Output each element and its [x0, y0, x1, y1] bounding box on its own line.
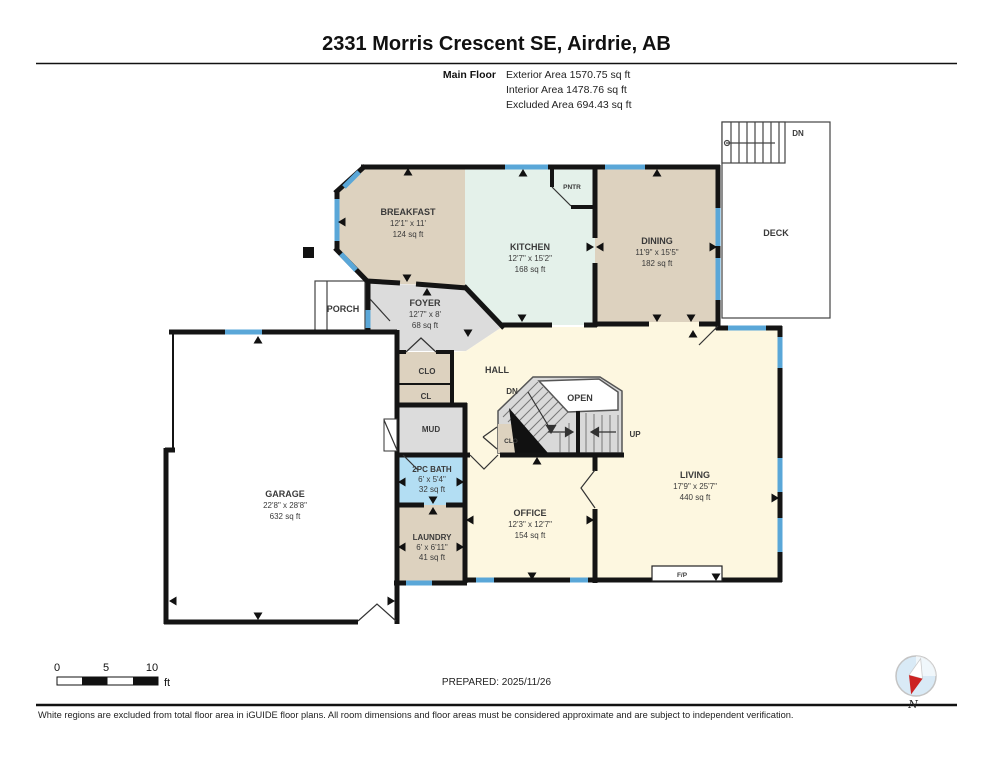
room-garage-area [166, 332, 397, 622]
deck-stairs-down-label: DN [792, 129, 804, 138]
room-deck-name: DECK [763, 228, 789, 238]
room-porch-name: PORCH [327, 304, 360, 314]
room-dining-name: DINING [641, 236, 673, 246]
room-bath-dims: 6' x 5'4" [418, 475, 446, 484]
room-bath-sqft: 32 sq ft [419, 485, 446, 494]
room-laundry-sqft: 41 sq ft [419, 553, 446, 562]
prepared-date: PREPARED: 2025/11/26 [0, 677, 993, 688]
room-mud-name: MUD [422, 425, 440, 434]
stairs-down-label: DN [506, 387, 518, 396]
room-living-sqft: 440 sq ft [680, 493, 711, 502]
scale-tick-0: 0 [54, 662, 60, 674]
room-breakfast-sqft: 124 sq ft [393, 230, 424, 239]
room-pantry-name: PNTR [563, 184, 581, 191]
room-closet-stairs-name: CLO [504, 438, 518, 445]
floorplan-page: 2331 Morris Crescent SE, Airdrie, AB Mai… [0, 0, 993, 768]
room-dining-sqft: 182 sq ft [642, 259, 673, 268]
room-office-dims: 12'3" x 12'7" [508, 520, 552, 529]
room-bath-name: 2PC BATH [412, 465, 452, 474]
room-kitchen-name: KITCHEN [510, 242, 550, 252]
room-garage-dims: 22'8" x 28'8" [263, 501, 307, 510]
room-garage-sqft: 632 sq ft [270, 512, 301, 521]
room-fills [166, 167, 782, 622]
room-foyer-sqft: 68 sq ft [412, 321, 439, 330]
room-closet-cl-name: CL [421, 392, 432, 401]
room-foyer-dims: 12'7" x 8' [409, 310, 442, 319]
porch-post [303, 247, 314, 258]
floorplan-drawing: BREAKFAST 12'1" x 11' 124 sq ft KITCHEN … [0, 0, 993, 768]
stairs-open-label: OPEN [567, 393, 593, 403]
deck [722, 122, 830, 318]
room-garage-name: GARAGE [265, 489, 305, 499]
scale-tick-5: 5 [103, 662, 109, 674]
room-living-name: LIVING [680, 470, 710, 480]
room-kitchen-dims: 12'7" x 15'2" [508, 254, 552, 263]
room-office-sqft: 154 sq ft [515, 531, 546, 540]
room-breakfast-dims: 12'1" x 11' [390, 219, 426, 228]
room-dining-dims: 11'9" x 15'5" [635, 248, 678, 257]
room-breakfast-name: BREAKFAST [380, 207, 436, 217]
room-hall-name: HALL [485, 365, 509, 375]
room-foyer-name: FOYER [409, 298, 441, 308]
disclaimer-text: White regions are excluded from total fl… [38, 710, 958, 720]
room-laundry-name: LAUNDRY [413, 533, 452, 542]
scale-tick-10: 10 [146, 662, 158, 674]
room-living-dims: 17'9" x 25'7" [673, 482, 717, 491]
room-office-name: OFFICE [514, 508, 547, 518]
stairs-up-label: UP [629, 430, 641, 439]
fireplace-label: F/P [677, 572, 688, 579]
room-laundry-dims: 6' x 6'11" [416, 543, 448, 552]
room-kitchen-sqft: 168 sq ft [515, 265, 546, 274]
room-closet-foyer-name: CLO [419, 367, 436, 376]
